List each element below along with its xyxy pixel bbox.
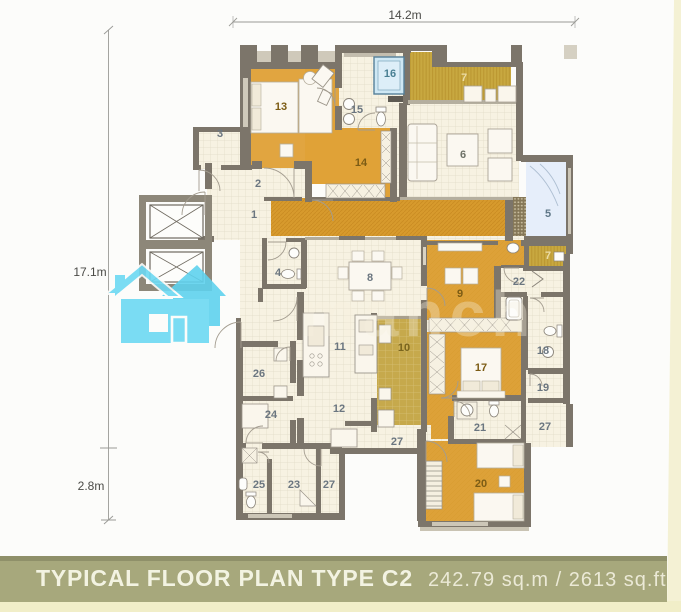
svg-text:14.2m: 14.2m: [388, 8, 421, 22]
svg-text:12: 12: [333, 403, 345, 415]
svg-text:27: 27: [323, 479, 335, 491]
svg-text:2: 2: [255, 178, 261, 190]
svg-text:24: 24: [265, 409, 278, 421]
svg-text:2.8m: 2.8m: [78, 479, 105, 493]
svg-text:18: 18: [537, 345, 549, 357]
svg-text:6: 6: [460, 149, 466, 161]
svg-text:16: 16: [384, 68, 396, 80]
svg-text:20: 20: [475, 478, 487, 490]
svg-text:7: 7: [545, 250, 551, 262]
svg-text:17: 17: [475, 362, 487, 374]
svg-text:27: 27: [391, 436, 403, 448]
svg-text:7: 7: [461, 72, 467, 84]
svg-text:25: 25: [253, 479, 265, 491]
svg-text:14: 14: [355, 157, 368, 169]
svg-text:17.1m: 17.1m: [73, 265, 106, 279]
svg-text:21: 21: [474, 422, 486, 434]
svg-text:26: 26: [253, 368, 265, 380]
svg-text:TYPICAL FLOOR PLAN TYPE C2: TYPICAL FLOOR PLAN TYPE C2: [36, 565, 413, 591]
svg-text:3: 3: [217, 128, 223, 140]
svg-text:5: 5: [545, 208, 551, 220]
svg-text:manch: manch: [300, 278, 536, 350]
svg-text:15: 15: [351, 104, 363, 116]
svg-text:27: 27: [539, 421, 551, 433]
svg-text:4: 4: [275, 267, 282, 279]
svg-text:242.79 sq.m / 2613 sq.ft: 242.79 sq.m / 2613 sq.ft: [428, 569, 667, 591]
svg-text:19: 19: [537, 382, 549, 394]
svg-text:23: 23: [288, 479, 300, 491]
svg-text:13: 13: [275, 101, 287, 113]
svg-text:1: 1: [251, 209, 257, 221]
